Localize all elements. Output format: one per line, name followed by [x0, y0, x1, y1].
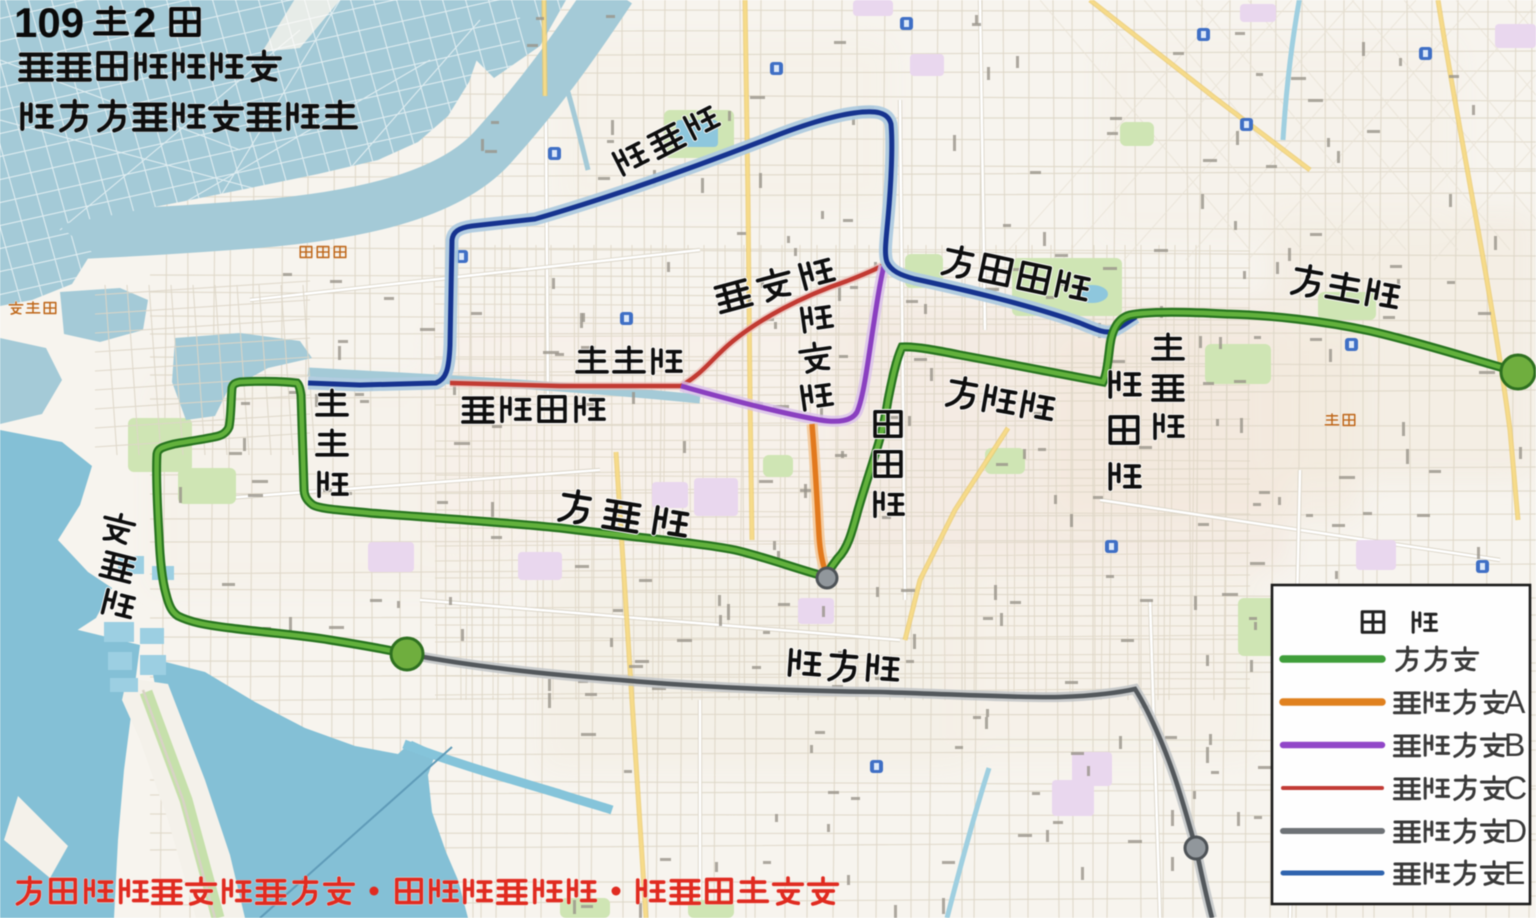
- svg-text:E: E: [1504, 855, 1525, 891]
- svg-text:D: D: [1504, 813, 1527, 849]
- svg-text:A: A: [1504, 684, 1526, 720]
- svg-text:109: 109: [14, 0, 84, 46]
- svg-text:B: B: [1504, 727, 1525, 763]
- svg-text:2: 2: [133, 0, 156, 46]
- svg-text:C: C: [1504, 770, 1527, 806]
